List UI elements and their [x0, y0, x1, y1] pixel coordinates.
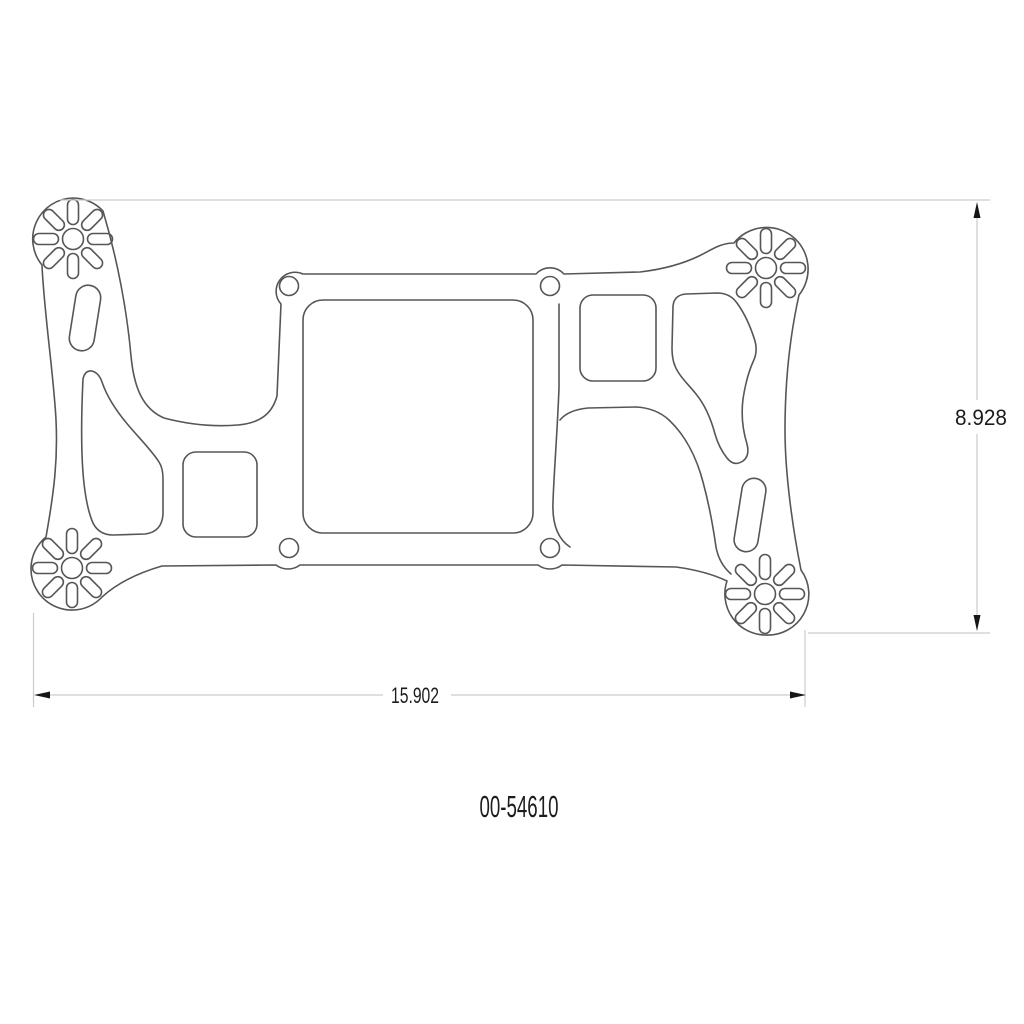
flower-cutout-bottom-right	[726, 555, 805, 634]
arrow-up-icon	[974, 202, 981, 218]
arrow-down-icon	[974, 615, 981, 631]
right-web-arm-edge	[560, 407, 731, 574]
bolt-hole-bottom-right	[541, 539, 560, 558]
flower-cutout-top-right	[727, 229, 806, 308]
arrow-left-icon	[34, 692, 50, 699]
part-number-label: 00-54610	[480, 789, 559, 824]
right-square-cutout	[580, 295, 656, 381]
bolt-hole-bottom-left	[280, 539, 299, 558]
flower-cutout-bottom-left	[33, 529, 112, 608]
part-silhouette	[31, 198, 809, 635]
right-web-left-edge	[553, 304, 570, 547]
dimension-arrows-group	[34, 202, 981, 699]
bolt-hole-top-right	[541, 277, 560, 296]
height-dimension-label: 8.928	[955, 405, 1007, 430]
left-contour-cutout	[82, 371, 163, 535]
flower-cutout-top-left	[34, 200, 113, 279]
right-arm-slot	[732, 477, 767, 554]
left-square-cutout	[183, 452, 257, 537]
bolt-hole-top-left	[280, 277, 299, 296]
dimension-lines-group	[34, 200, 991, 707]
center-square-cutout	[303, 300, 533, 533]
technical-drawing-svg: 8.928 15.902 00-54610	[0, 0, 1024, 1024]
part-outline-group	[31, 198, 809, 635]
drawing-page: 8.928 15.902 00-54610	[0, 0, 1024, 1024]
arrow-right-icon	[790, 692, 806, 699]
left-arm-slot	[67, 283, 102, 352]
width-dimension-label: 15.902	[391, 683, 439, 708]
